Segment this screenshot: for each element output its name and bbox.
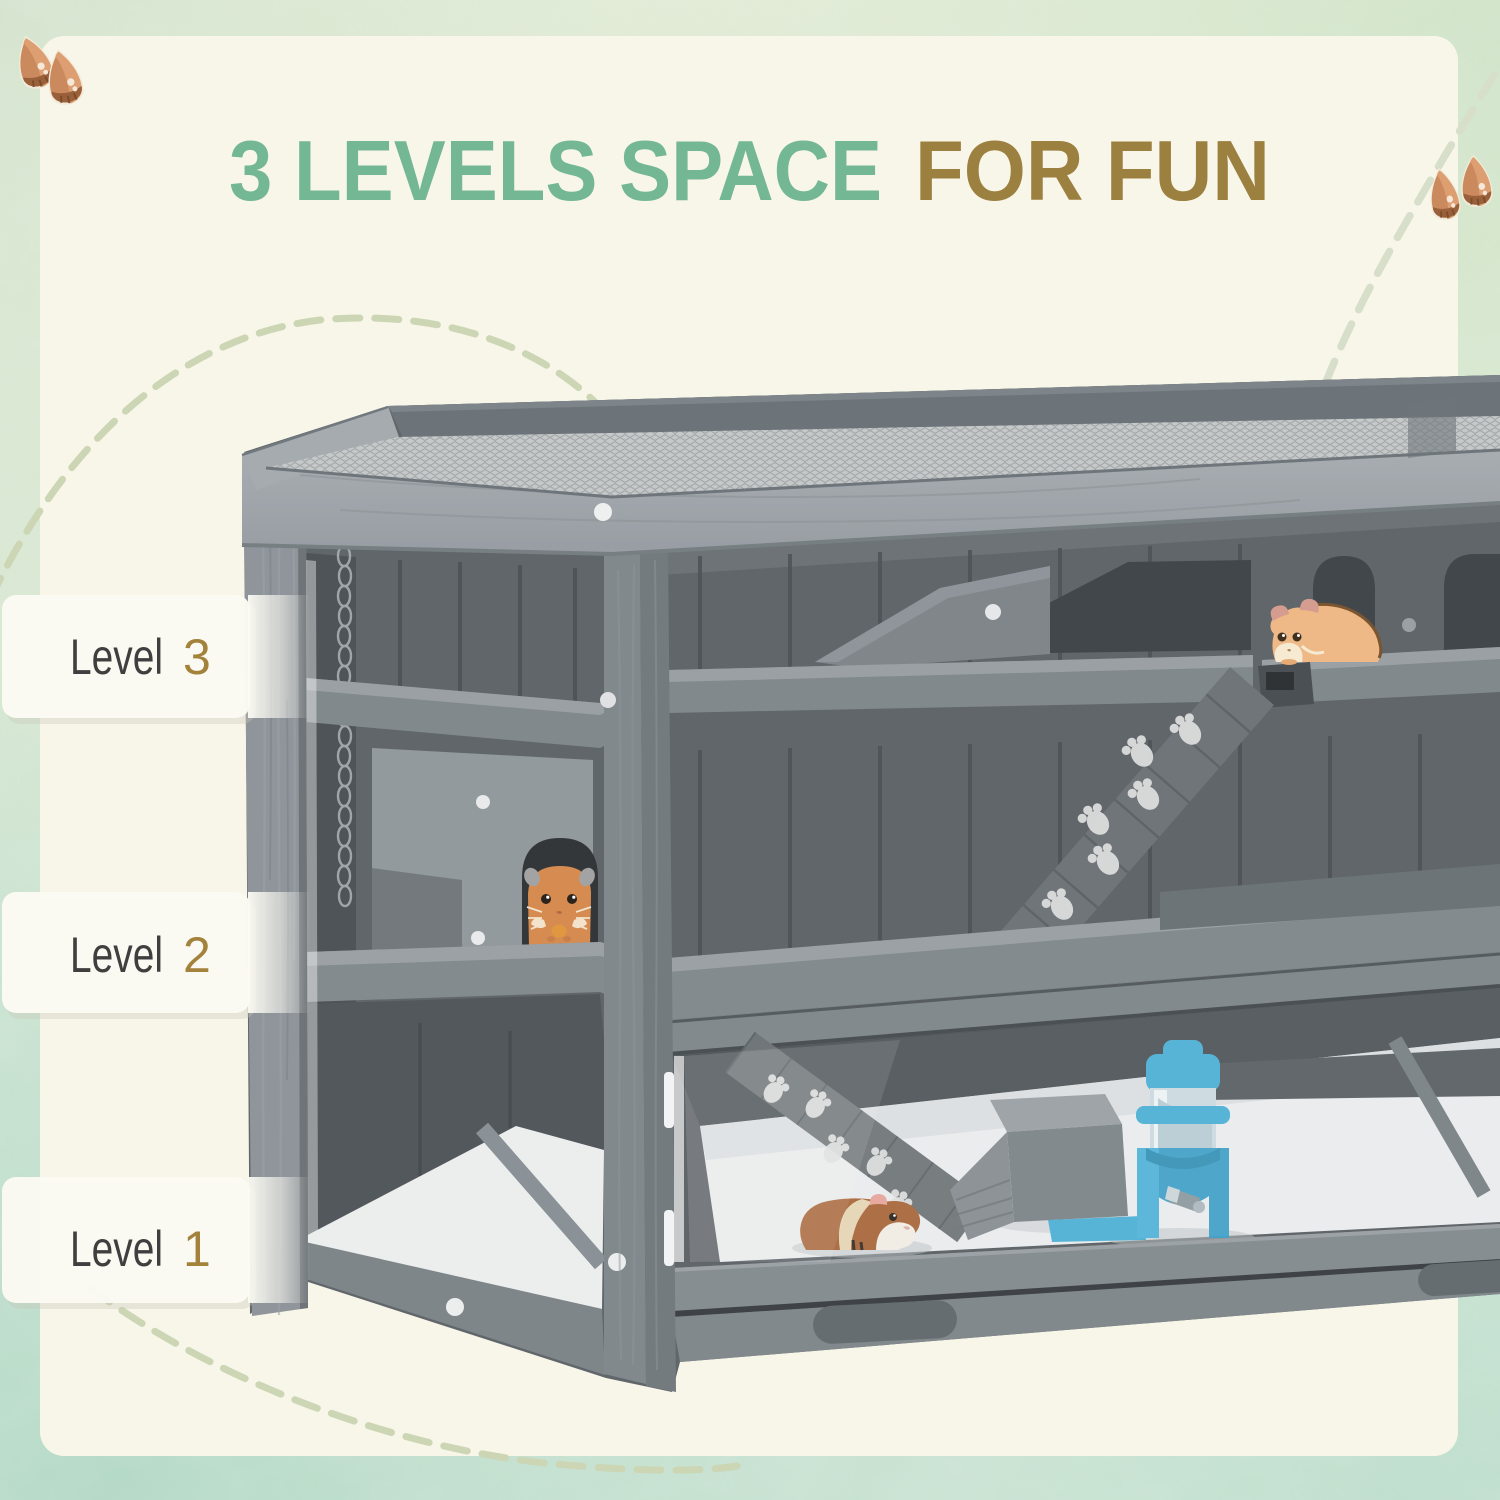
svg-text:3 LEVELS SPACE: 3 LEVELS SPACE (229, 124, 882, 219)
svg-text:3: 3 (183, 629, 211, 685)
svg-text:2: 2 (183, 927, 211, 983)
svg-text:Level: Level (70, 629, 163, 685)
svg-text:Level: Level (70, 1221, 163, 1277)
svg-text:1: 1 (183, 1221, 211, 1277)
svg-text:Level: Level (70, 927, 163, 983)
svg-text:FOR FUN: FOR FUN (915, 124, 1270, 219)
